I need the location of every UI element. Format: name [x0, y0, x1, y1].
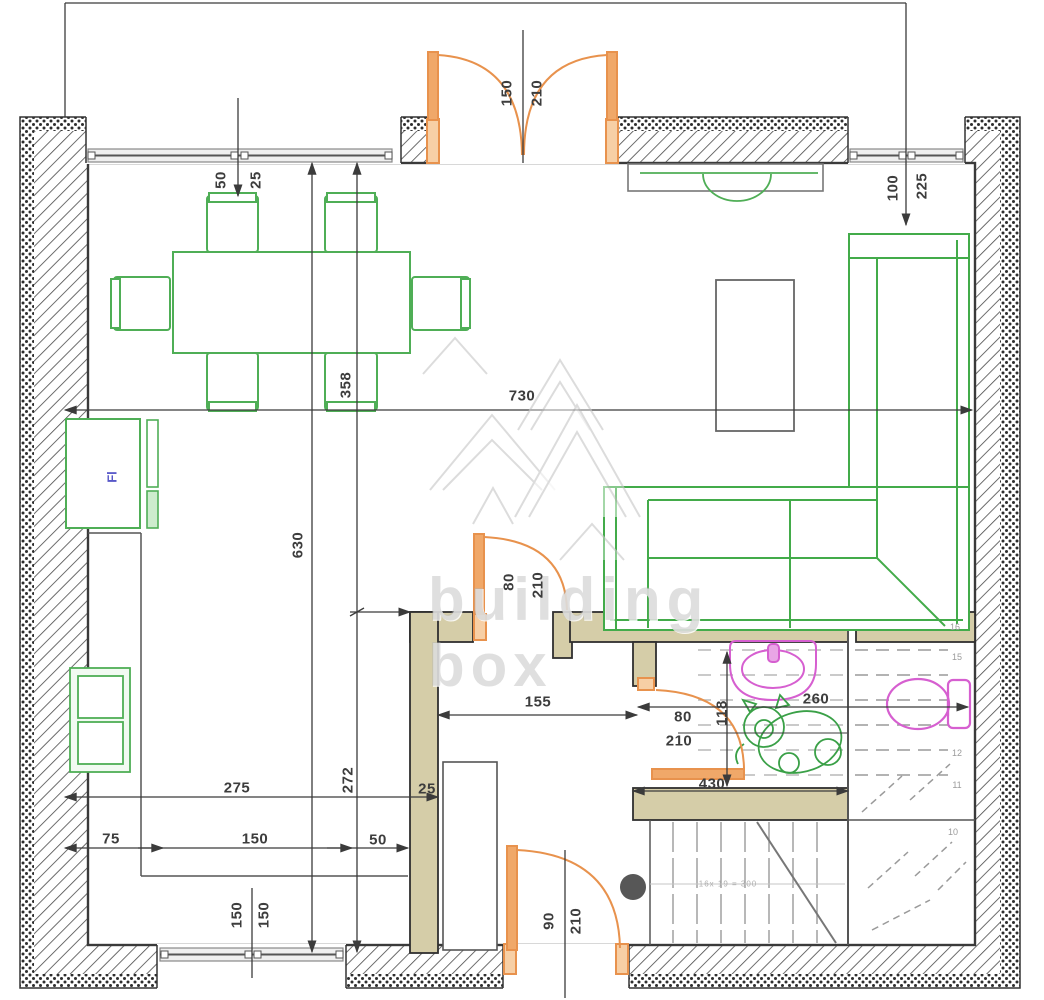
kitchen-sink-unit: [70, 668, 130, 772]
window-top-left: [88, 149, 392, 162]
refrigerator: [66, 419, 158, 528]
hall-closet: [443, 762, 497, 950]
stair-post: [620, 874, 646, 900]
toilet-icon: [887, 679, 970, 729]
dining-table: [173, 252, 410, 353]
floor-plan-drawing: [0, 0, 1044, 1000]
bathroom-door: [638, 678, 744, 779]
tv-console: [628, 164, 823, 201]
dog-icon: [736, 695, 848, 781]
coffee-table: [716, 280, 794, 431]
floor-plan: building box 150210502510022535873063080…: [0, 0, 1044, 1000]
kitchen-counter: [88, 533, 408, 876]
dining-set: [111, 193, 470, 411]
winder-treads: [862, 764, 966, 930]
